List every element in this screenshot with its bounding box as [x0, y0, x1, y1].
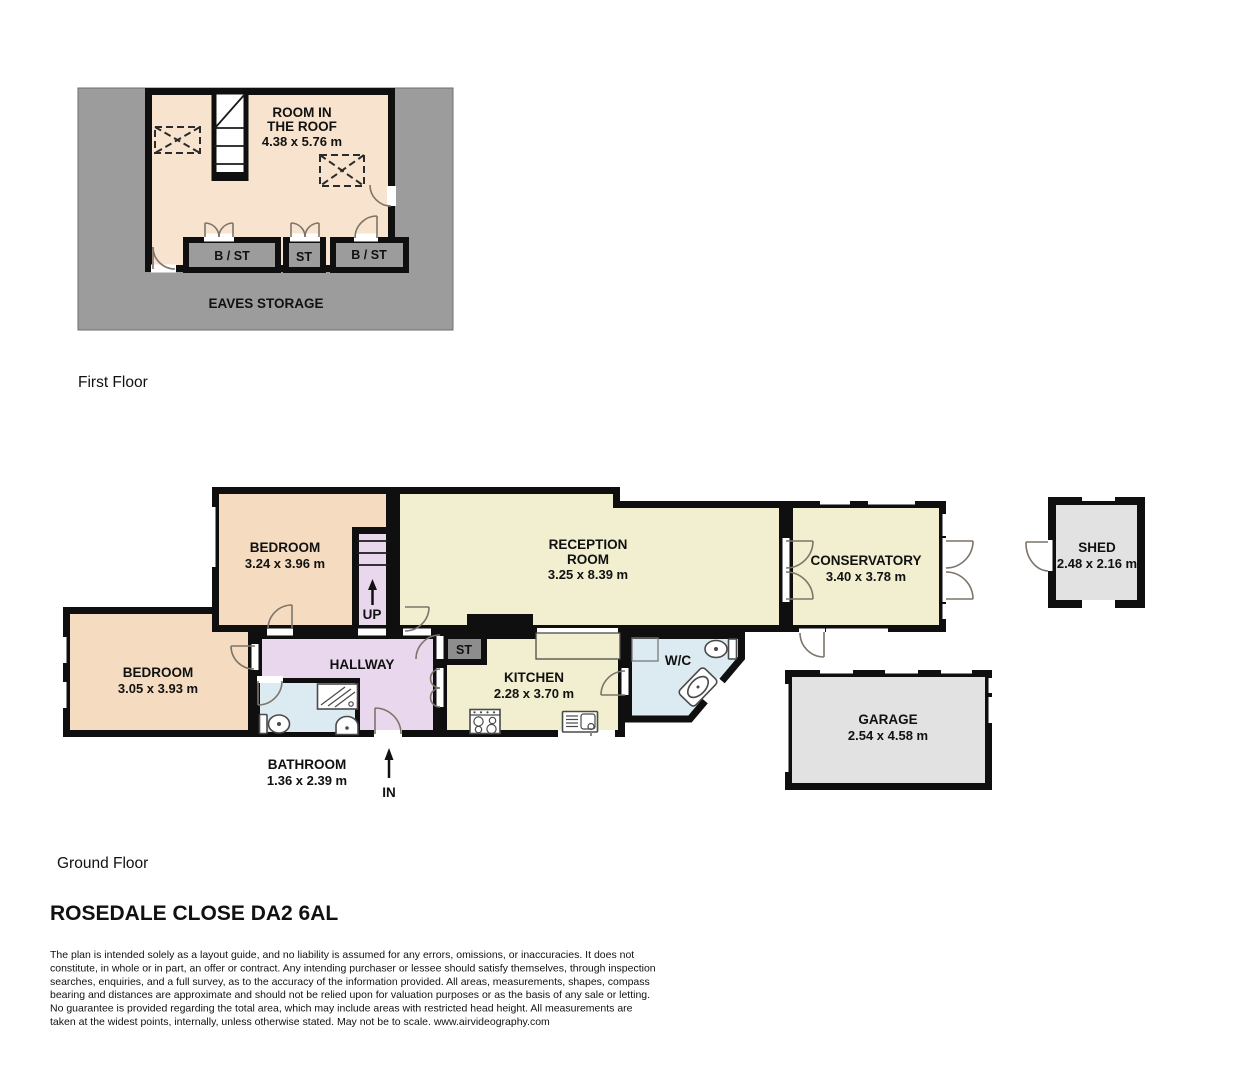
- eaves-storage-label: EAVES STORAGE: [208, 296, 323, 311]
- storage-bst-2-label: B / ST: [351, 248, 387, 262]
- disclaimer-line: taken at the widest points, internally, …: [50, 1016, 550, 1028]
- bedroom1-name-label: BEDROOM: [250, 540, 321, 555]
- reception-name-line1: RECEPTION: [549, 537, 628, 552]
- first-floor-label: First Floor: [78, 374, 148, 391]
- stairs-hallway-opening: [358, 629, 386, 636]
- garage-name-label: GARAGE: [858, 712, 917, 727]
- wc-name-label: W/C: [665, 653, 691, 668]
- bedroom2-dims-label: 3.05 x 3.93 m: [118, 681, 198, 696]
- bathroom-name-label: BATHROOM: [268, 757, 347, 772]
- up-label: UP: [363, 607, 382, 622]
- ground-floor-label: Ground Floor: [57, 855, 148, 872]
- conservatory-name-label: CONSERVATORY: [810, 553, 921, 568]
- bedroom2-name-label: BEDROOM: [123, 665, 194, 680]
- bedroom1-dims-label: 3.24 x 3.96 m: [245, 556, 325, 571]
- ground-floor-plan: BEDROOM 3.24 x 3.96 m BEDROOM 3.05 x 3.9…: [57, 491, 1141, 873]
- shower-icon: [318, 684, 358, 709]
- kitchen-sink-icon: [563, 712, 598, 737]
- storage-st-label: ST: [296, 250, 312, 264]
- st-ground-label: ST: [456, 643, 472, 657]
- disclaimer-line: bearing and distances are approximate an…: [50, 989, 650, 1001]
- stairs-first-floor: [212, 92, 249, 181]
- shed-dims-label: 2.48 x 2.16 m: [1057, 556, 1137, 571]
- disclaimer-line: The plan is intended solely as a layout …: [50, 949, 634, 961]
- footer-text: ROSEDALE CLOSE DA2 6AL The plan is inten…: [50, 902, 656, 1028]
- first-floor-plan: ROOM IN THE ROOF 4.38 x 5.76 m B / ST ST…: [78, 88, 453, 391]
- in-label: IN: [382, 785, 396, 800]
- shed-name-label: SHED: [1078, 540, 1116, 555]
- kitchen-name-label: KITCHEN: [504, 670, 564, 685]
- reception-dims-label: 3.25 x 8.39 m: [548, 567, 628, 582]
- disclaimer-line: constitute, in whole or in part, an offe…: [50, 962, 656, 974]
- chimney-breast: [467, 614, 533, 632]
- hob-icon: [470, 710, 500, 734]
- conservatory-dims-label: 3.40 x 3.78 m: [826, 569, 906, 584]
- page-title: ROSEDALE CLOSE DA2 6AL: [50, 902, 338, 925]
- reception-name-line2: ROOM: [567, 552, 609, 567]
- kitchen-dims-label: 2.28 x 3.70 m: [494, 686, 574, 701]
- toilet-icon: [705, 639, 737, 659]
- toilet-icon: [260, 715, 290, 734]
- disclaimer-line: No guarantee is provided regarding the t…: [50, 1003, 633, 1015]
- in-arrow-icon: [385, 748, 394, 778]
- basin-icon: [336, 717, 358, 735]
- storage-bst-1-label: B / ST: [214, 249, 250, 263]
- roof-room-name-line2: THE ROOF: [267, 119, 337, 134]
- roof-room-name-line1: ROOM IN: [272, 105, 331, 120]
- hallway-name-label: HALLWAY: [330, 657, 395, 672]
- floor-plan-canvas: ROOM IN THE ROOF 4.38 x 5.76 m B / ST ST…: [0, 0, 1233, 1080]
- roof-room-dims: 4.38 x 5.76 m: [262, 134, 342, 149]
- kitchen-counter: [536, 633, 620, 659]
- garage-dims-label: 2.54 x 4.58 m: [848, 728, 928, 743]
- bathroom-dims-label: 1.36 x 2.39 m: [267, 773, 347, 788]
- disclaimer-line: searches, enquiries, and a full survey, …: [50, 976, 650, 988]
